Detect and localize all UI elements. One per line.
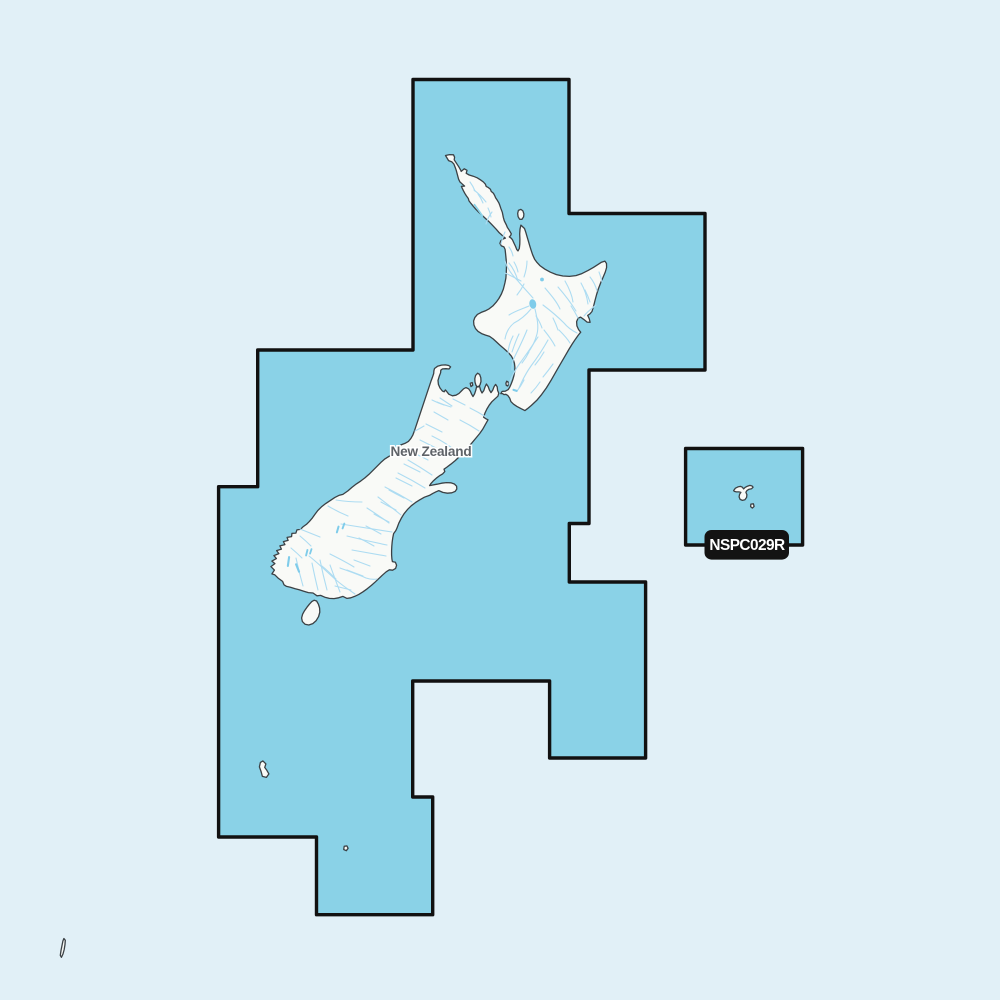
svg-text:New Zealand: New Zealand: [391, 444, 472, 459]
svg-text:NSPC029R: NSPC029R: [709, 537, 785, 554]
